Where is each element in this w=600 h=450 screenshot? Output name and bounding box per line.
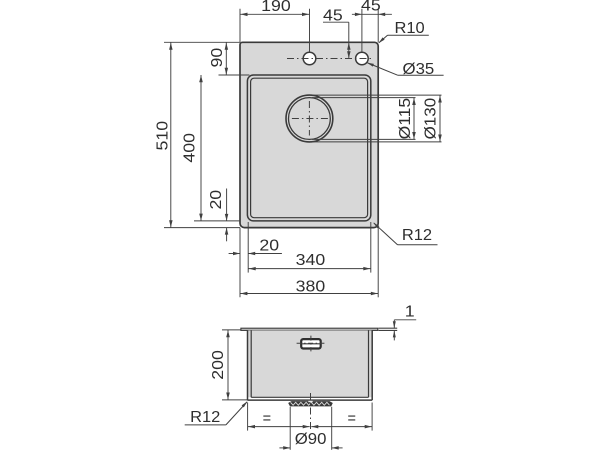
svg-text:Ø90: Ø90 [295, 431, 327, 448]
svg-text:340: 340 [296, 252, 326, 269]
svg-text:R12: R12 [402, 227, 432, 244]
svg-text:380: 380 [296, 279, 326, 296]
svg-text:R12: R12 [190, 409, 220, 426]
svg-text:45: 45 [361, 0, 381, 15]
svg-text:90: 90 [209, 48, 226, 68]
svg-text:Ø115: Ø115 [397, 98, 414, 140]
svg-text:20: 20 [259, 237, 279, 254]
svg-text:=: = [347, 411, 355, 427]
svg-text:20: 20 [208, 190, 225, 210]
svg-text:=: = [263, 411, 271, 427]
svg-text:Ø130: Ø130 [423, 98, 440, 140]
svg-text:45: 45 [323, 7, 343, 24]
svg-text:R10: R10 [395, 20, 425, 37]
svg-text:510: 510 [155, 121, 172, 151]
svg-text:Ø35: Ø35 [403, 61, 435, 78]
svg-text:200: 200 [210, 350, 227, 380]
svg-text:400: 400 [182, 133, 199, 163]
svg-text:190: 190 [261, 0, 291, 15]
svg-text:1: 1 [405, 303, 415, 320]
